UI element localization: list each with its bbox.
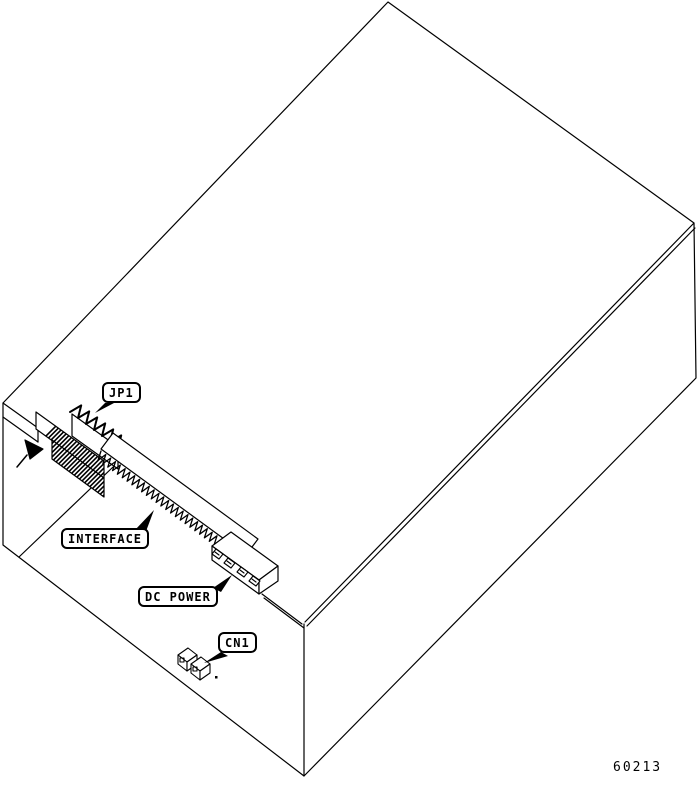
label-jp1: JP1 (102, 382, 141, 403)
figure-number: 60213 (613, 760, 662, 775)
label-interface: INTERFACE (61, 528, 149, 549)
label-dc-power: DC POWER (138, 586, 218, 607)
diagram-page: JP1 INTERFACE DC POWER CN1 60213 (0, 0, 699, 785)
label-cn1: CN1 (218, 632, 257, 653)
